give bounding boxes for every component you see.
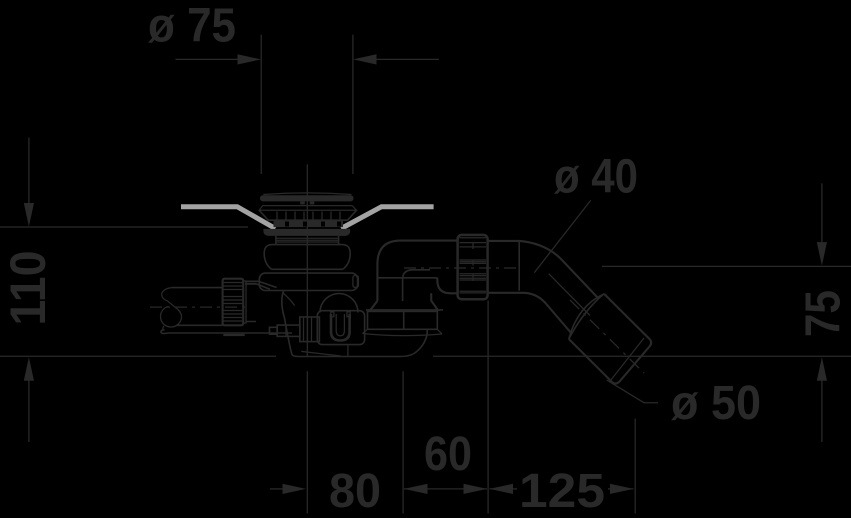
- svg-text:110: 110: [0, 251, 56, 326]
- svg-text:ø 75: ø 75: [148, 0, 236, 53]
- svg-text:75: 75: [795, 290, 850, 337]
- svg-text:60: 60: [424, 428, 472, 481]
- svg-text:80: 80: [329, 465, 381, 518]
- svg-text:ø 50: ø 50: [671, 377, 761, 430]
- svg-text:125: 125: [519, 465, 605, 518]
- svg-text:ø 40: ø 40: [554, 151, 638, 204]
